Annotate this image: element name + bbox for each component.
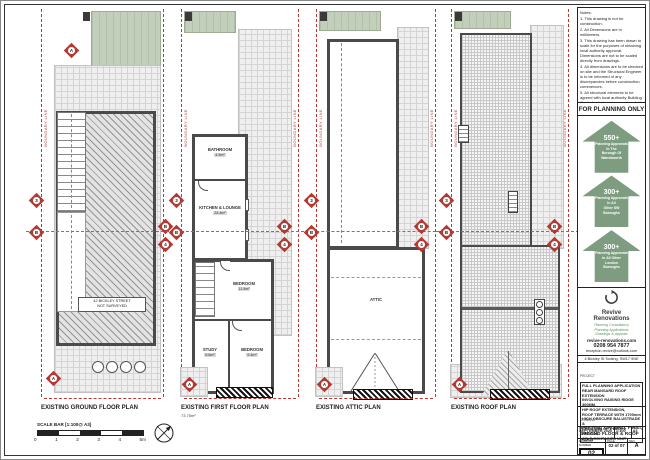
marker-B: B — [416, 221, 427, 232]
chimney — [320, 12, 327, 21]
bin — [106, 361, 118, 373]
roofspace-upper — [327, 39, 399, 249]
roof-slope-line — [331, 339, 421, 340]
vent — [536, 301, 543, 308]
roof-plan: BOUNDARY LINE BOUNDARY LINE 3 B B 4 A — [446, 9, 574, 401]
boundary-label: BOUNDARY LINE — [292, 109, 297, 147]
marker-4: 4 — [160, 239, 171, 250]
drawing-number: 02 — [579, 448, 604, 454]
company-services: Planning Consultancy Planning Applicatio… — [578, 323, 645, 337]
neighbour-label: 42 BICKLEY STREET NOT SURVEYED — [78, 297, 146, 312]
ground-plan-title: EXISTING GROUND FLOOR PLAN — [41, 405, 138, 411]
notes-heading: Notes: — [580, 10, 643, 15]
room-label-study: STUDY 5.6m² — [192, 347, 228, 357]
drawing-sheet: BOUNDARY LINE BOUNDARY LINE 42 BICKLEY S… — [0, 0, 650, 460]
garden-area — [454, 11, 511, 29]
neighbour-label-line2: NOT SURVEYED — [81, 304, 143, 309]
for-planning-only-banner: FOR PLANNING ONLY — [578, 103, 645, 116]
section-line — [26, 231, 179, 232]
marker-A: A — [454, 379, 465, 390]
boundary-line-right — [568, 9, 569, 397]
attic-plan-title: EXISTING ATTIC PLAN — [316, 405, 381, 411]
drawing-title-panel: DRAWING EXISTING GROUND, FIRST, SECOND F… — [578, 407, 645, 427]
boundary-label: BOUNDARY LINE — [183, 109, 188, 147]
vent-pipes — [534, 299, 545, 325]
marker-A: A — [66, 45, 77, 56]
chimney — [83, 12, 90, 21]
front-boundary — [454, 398, 566, 399]
scale-cell: SCALE 1:100 — [615, 427, 632, 438]
size-cell: SIZE A3 — [632, 427, 645, 438]
approvals-panel: 550+ Planning Approvals In The Borough O… — [578, 116, 645, 287]
section-line — [301, 231, 451, 232]
boundary-line-right — [298, 9, 299, 397]
scale-bar-label: SCALE BAR [1:100@ A3] — [37, 422, 91, 427]
bin — [120, 361, 132, 373]
garden-area — [91, 11, 161, 67]
section-line — [166, 231, 314, 232]
note: 1. This drawing is not for construction. — [580, 16, 643, 26]
front-boundary — [44, 398, 161, 399]
room-label-bedroom1: BEDROOM 11.9m² — [216, 281, 272, 291]
meta-row: DATE SEPTEMBER 2020 SCALE 1:100 SIZE A3 — [578, 427, 645, 439]
title-block: Notes: 1. This drawing is not for constr… — [577, 7, 646, 455]
north-arrow-icon — [153, 422, 175, 444]
section-line — [436, 231, 584, 232]
room-label-bedroom2: BEDROOM 9.4m² — [230, 347, 274, 357]
marker-3: 3 — [31, 195, 42, 206]
number-row: DRAWING NUMBER 02 PAGE 02 of 07 REV A — [578, 439, 645, 454]
rooflight — [458, 125, 469, 143]
centre-line — [71, 114, 72, 309]
marker-4: 4 — [549, 239, 560, 250]
chimney — [455, 12, 462, 21]
note: 4. All dimensions are to be checked on s… — [580, 64, 643, 89]
approval-arrow-wandsworth: 550+ Planning Approvals In The Borough O… — [583, 121, 641, 173]
boundary-line-right — [435, 9, 436, 397]
note: 5. All structural elements to be agreed … — [580, 90, 643, 103]
garden-area — [319, 11, 381, 31]
boundary-label: BOUNDARY LINE — [429, 109, 434, 147]
company-email: reception.revive@outlook.com — [578, 349, 645, 353]
chimney — [185, 12, 192, 21]
bay-window-hatch — [216, 387, 273, 398]
outrigger-roof — [460, 33, 532, 247]
roof-slope-line — [331, 277, 421, 278]
marker-B: B — [306, 227, 317, 238]
paved-yard — [397, 27, 429, 249]
revision: A — [629, 443, 644, 449]
note: 3. This drawing has been drawn to scale … — [580, 38, 643, 63]
marker-A: A — [48, 373, 59, 384]
marker-B: B — [31, 227, 42, 238]
page-number: 02 of 07 — [607, 443, 626, 448]
roof-plan-title: EXISTING ROOF PLAN — [451, 405, 516, 411]
bin-store — [92, 361, 146, 373]
date-cell: DATE SEPTEMBER 2020 — [578, 427, 615, 438]
marker-3: 3 — [441, 195, 452, 206]
marker-B: B — [549, 221, 560, 232]
rev-cell: REV A — [628, 439, 645, 454]
first-floor-plan: BOUNDARY LINE BOUNDARY LINE BATHROOM 4.5… — [176, 9, 304, 401]
boundary-line-right — [163, 9, 164, 397]
marker-3: 3 — [171, 195, 182, 206]
marker-A: A — [319, 379, 330, 390]
drawing-label: DRAWING — [580, 418, 595, 422]
bin — [134, 361, 146, 373]
centre-line — [341, 43, 342, 243]
revive-logo-icon — [604, 290, 619, 305]
marker-B: B — [441, 227, 452, 238]
approval-arrow-sw: 300+ Planning Approvals In All Other SW … — [583, 175, 641, 227]
marker-3: 3 — [306, 195, 317, 206]
attic-plan: BOUNDARY LINE BOUNDARY LINE ATTIC 3 B B … — [311, 9, 441, 401]
bin — [92, 361, 104, 373]
company-panel: Revive Renovations Planning Consultancy … — [578, 288, 645, 364]
company-address: 4 Bickley St Tooting, SW17 9NE — [578, 357, 645, 361]
boundary-label: BOUNDARY LINE — [318, 109, 323, 147]
paved-yard — [530, 25, 564, 249]
vent — [536, 317, 543, 324]
room-label-kitchen: KITCHEN & LOUNGE 24.4m² — [192, 205, 248, 215]
bay-roof-lines — [349, 351, 401, 393]
note: 2. All Dimensions are in millimeters. — [580, 27, 643, 37]
ground-floor-plan: BOUNDARY LINE BOUNDARY LINE 42 BICKLEY S… — [36, 9, 169, 401]
marker-A: A — [184, 379, 195, 390]
rooflight — [508, 191, 518, 213]
boundary-label: BOUNDARY LINE — [43, 109, 48, 147]
approval-arrow-london: 300+ Planning Approvals In All Other Lon… — [583, 230, 641, 282]
marker-B: B — [279, 221, 290, 232]
front-boundary — [184, 398, 296, 399]
drawing-number-cell: DRAWING NUMBER 02 — [578, 439, 606, 454]
marker-4: 4 — [279, 239, 290, 250]
first-plan-area: 73.75m² — [181, 413, 196, 418]
first-plan-title: EXISTING FIRST FLOOR PLAN — [181, 405, 269, 411]
room-label-bathroom: BATHROOM 4.5m² — [192, 147, 248, 157]
project-panel: PROJECT FULL PLANNING APPLICATION REAR M… — [578, 363, 645, 407]
scale-bar-ticks: 012345m — [34, 437, 146, 442]
page-cell: PAGE 02 of 07 — [606, 439, 628, 454]
divider — [578, 355, 645, 356]
scale-bar — [37, 430, 144, 436]
notes-panel: Notes: 1. This drawing is not for constr… — [578, 8, 645, 103]
vent — [536, 309, 543, 316]
marker-B: B — [171, 227, 182, 238]
staircase — [195, 262, 215, 317]
marker-4: 4 — [416, 239, 427, 250]
project-label: PROJECT — [580, 374, 595, 378]
company-name: Revive Renovations — [578, 310, 645, 323]
front-boundary — [319, 398, 433, 399]
room-label-attic: ATTIC — [327, 297, 425, 302]
